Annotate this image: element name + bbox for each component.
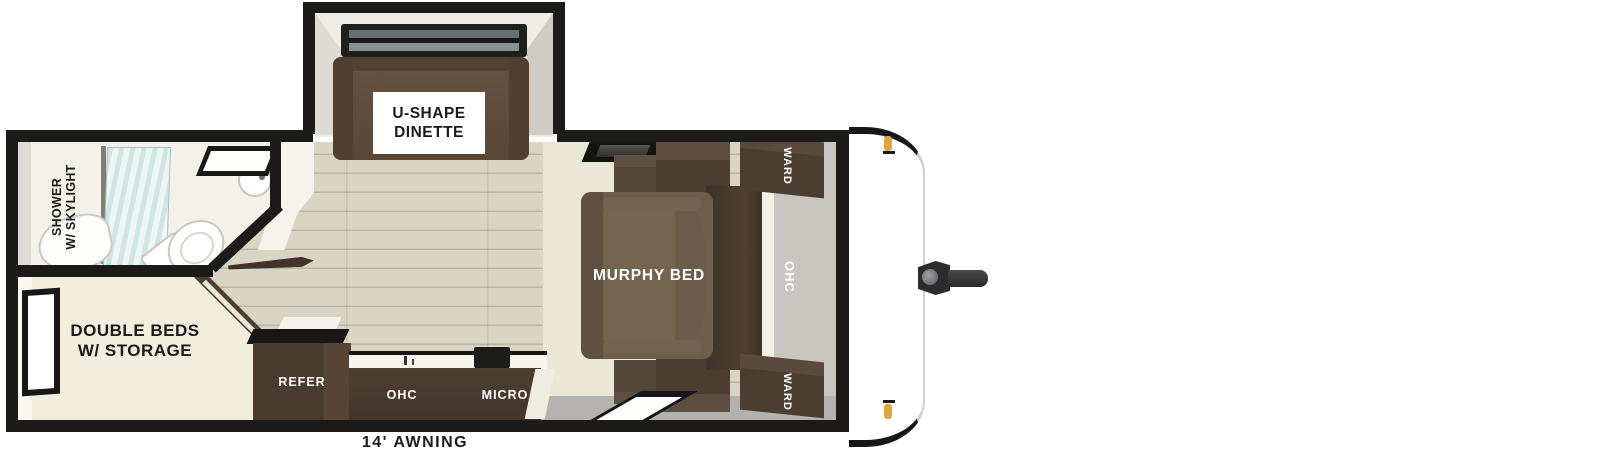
marker-light-top <box>884 136 892 151</box>
wall-bottom <box>6 420 849 432</box>
floorplan-canvas: SHOWER W/ SKYLIGHT DOUBLE BEDS W/ STORAG… <box>0 0 1600 452</box>
murphy-bed-bottom-cushion <box>603 340 701 354</box>
dinette-bench-left <box>333 57 353 160</box>
refrigerator-top <box>247 329 350 344</box>
wardrobe-top-label: WARD <box>779 136 795 196</box>
ohc-kitchen-label: OHC <box>387 388 418 402</box>
shower-label-line1: SHOWER <box>50 178 64 236</box>
refrigerator: REFER <box>253 343 351 421</box>
microwave-icon <box>474 347 510 368</box>
dinette-bench-right <box>509 57 529 160</box>
shower-label: SHOWER W/ SKYLIGHT <box>47 152 81 262</box>
trailer-front-cap <box>849 127 925 447</box>
wardrobe-bottom-label: WARD <box>779 362 795 422</box>
front-ohc-label: OHC <box>782 247 798 307</box>
wall-top-right <box>557 130 849 142</box>
bathroom-left-wall-shading <box>16 142 31 272</box>
micro-label-wrap: MICRO <box>482 368 529 421</box>
front-ohc-counter-edge <box>762 188 774 366</box>
kitchen-faucet <box>404 356 407 365</box>
awning-label: 14' AWNING <box>320 434 510 452</box>
wall-rear <box>6 130 18 432</box>
marker-light-bottom <box>884 404 892 419</box>
murphy-bed-back-cabinet <box>706 186 770 370</box>
micro-label: MICRO <box>482 388 529 402</box>
kitchen-cabinet-face: OHC MICRO <box>349 368 541 421</box>
bathroom-wall-bottom <box>6 265 213 277</box>
hitch-tongue <box>948 270 988 287</box>
shower-label-line2: W/ SKYLIGHT <box>64 164 78 249</box>
marker-light-bottom-base <box>883 400 895 403</box>
bathroom-roof-vent <box>196 146 280 176</box>
dinette-label-line2: DINETTE <box>394 123 464 142</box>
dinette-slideout-wall-left <box>303 2 315 134</box>
bathroom-wall-right <box>270 142 281 210</box>
dinette-label: U-SHAPE DINETTE <box>373 92 485 154</box>
wall-front <box>836 130 849 432</box>
double-beds-label-line2: W/ STORAGE <box>78 341 192 361</box>
double-beds-label-line1: DOUBLE BEDS <box>70 321 199 341</box>
kitchen-faucet-handle <box>412 359 414 365</box>
murphy-bed-label: MURPHY BED <box>584 263 714 289</box>
dinette-slideout-wall-right <box>553 2 565 134</box>
ohc-kitchen-label-wrap: OHC <box>387 368 418 421</box>
dinette-bench-back <box>353 57 509 71</box>
dinette-label-line1: U-SHAPE <box>392 104 465 123</box>
dinette-window-glass <box>349 30 519 51</box>
dinette-slideout-wall-top <box>303 2 565 13</box>
wall-top-left <box>6 130 313 142</box>
dinette-window <box>341 24 527 57</box>
murphy-bed-top-cushion <box>603 197 701 211</box>
hitch-knob <box>922 269 938 285</box>
double-beds-label: DOUBLE BEDS W/ STORAGE <box>30 320 240 362</box>
marker-light-top-base <box>883 151 895 154</box>
cabinet-top-small <box>614 155 660 197</box>
refer-label: REFER <box>278 375 325 389</box>
